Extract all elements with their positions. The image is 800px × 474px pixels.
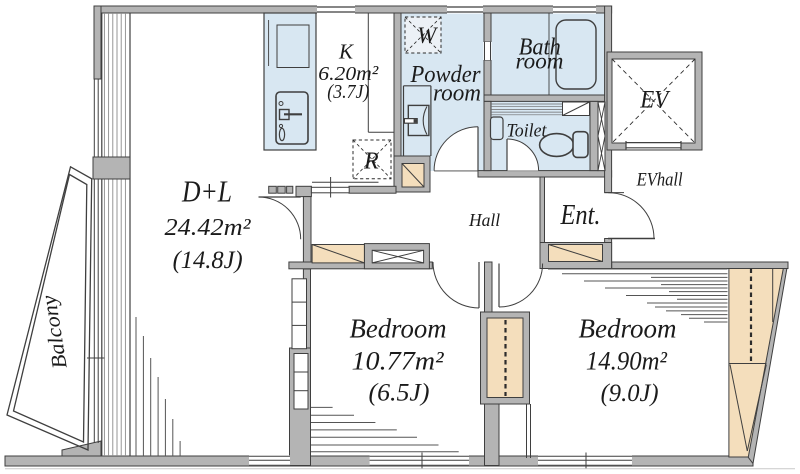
- svg-text:Toilet: Toilet: [507, 121, 548, 142]
- svg-text:Ent.: Ent.: [560, 199, 601, 231]
- svg-text:K: K: [338, 40, 354, 64]
- svg-text:Hall: Hall: [468, 210, 500, 230]
- svg-text:(14.8J): (14.8J): [173, 247, 243, 274]
- svg-text:Bedroom: Bedroom: [350, 312, 447, 343]
- svg-text:EVhall: EVhall: [636, 170, 683, 191]
- svg-text:room: room: [433, 80, 481, 106]
- svg-text:D+L: D+L: [181, 174, 232, 209]
- svg-text:24.42m²: 24.42m²: [165, 215, 252, 241]
- svg-text:W: W: [417, 23, 438, 48]
- svg-text:10.77m²: 10.77m²: [352, 347, 445, 376]
- svg-text:EV: EV: [639, 87, 670, 114]
- svg-text:R: R: [363, 148, 379, 174]
- svg-text:(6.5J): (6.5J): [369, 380, 430, 407]
- svg-text:(3.7J): (3.7J): [327, 81, 369, 103]
- svg-text:Bedroom: Bedroom: [579, 312, 677, 343]
- svg-text:14.90m²: 14.90m²: [586, 347, 668, 376]
- svg-text:room: room: [516, 49, 564, 75]
- svg-text:(9.0J): (9.0J): [601, 380, 659, 407]
